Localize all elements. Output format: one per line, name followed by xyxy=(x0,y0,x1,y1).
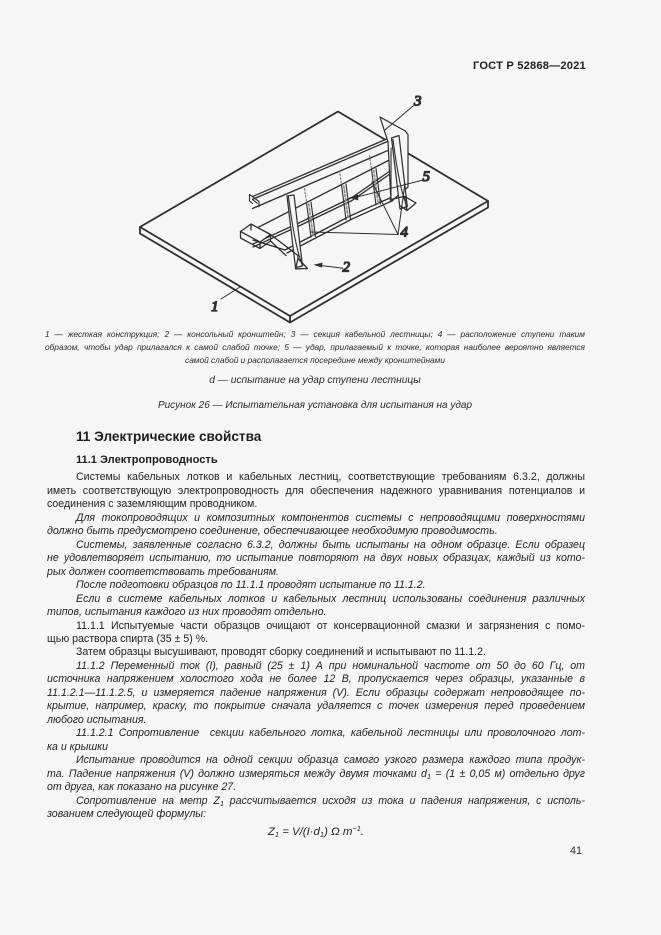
svg-text:4: 4 xyxy=(401,225,409,241)
svg-text:2: 2 xyxy=(343,260,351,276)
svg-text:5: 5 xyxy=(423,169,431,185)
svg-text:1: 1 xyxy=(211,299,219,315)
svg-text:3: 3 xyxy=(413,94,422,110)
